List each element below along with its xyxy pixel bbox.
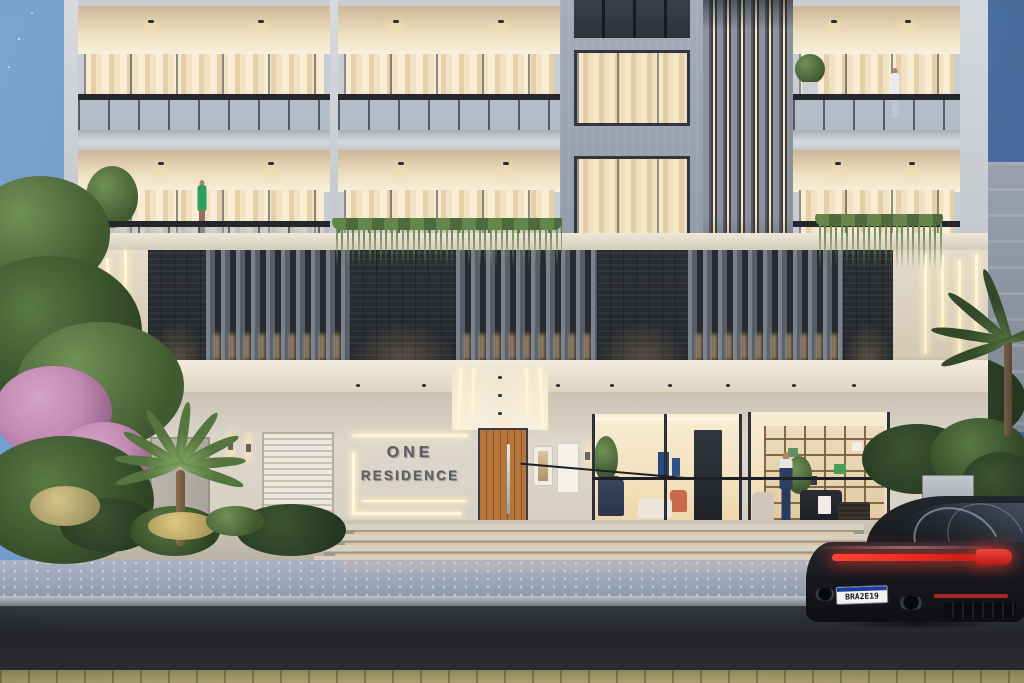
sign-led-line [362, 500, 466, 502]
wall-sconce [585, 452, 590, 460]
balcony-ceiling [793, 150, 960, 192]
floor-slab [338, 130, 560, 150]
person-body [780, 459, 793, 489]
rear-diffuser [944, 602, 1016, 618]
downlight [393, 20, 399, 23]
sports-car: BRA2E19 [806, 490, 1024, 635]
wall-sconce [246, 444, 251, 452]
door-handle [507, 444, 510, 514]
canopy-downlight [498, 376, 502, 379]
lobby-armchair [670, 490, 687, 512]
louver-column [703, 0, 793, 252]
downlight [498, 20, 504, 23]
downlight [268, 162, 274, 165]
lobby-artwork [672, 458, 680, 476]
louver-panel [206, 250, 350, 362]
star [8, 66, 10, 68]
railing-glass [338, 100, 560, 132]
balcony-bay-middle [338, 0, 560, 252]
hanging-planter-right [815, 214, 943, 270]
entry-handrail [592, 477, 890, 480]
balcony-plant [795, 54, 825, 84]
taillight-bar [832, 554, 980, 561]
dark-upper-window [574, 0, 690, 38]
sign-led-line [352, 512, 462, 515]
balcony-ceiling [338, 6, 560, 54]
downlight [158, 162, 164, 165]
hanging-planter-center [332, 218, 562, 268]
canopy-downlight [556, 384, 560, 387]
sign-led-line [352, 452, 355, 514]
canopy-downlight [498, 412, 502, 415]
taillight-cluster [976, 549, 1012, 565]
downlight [148, 20, 154, 23]
canopy-downlight [356, 384, 360, 387]
exhaust-tip [814, 588, 836, 601]
deck-highlight [814, 546, 1000, 549]
shelf-item [852, 442, 862, 451]
shelf-item [834, 464, 846, 474]
star [18, 38, 20, 40]
uplight-glow [688, 334, 843, 360]
floor-slab [78, 130, 330, 150]
person-dress [198, 185, 207, 211]
lit-window [574, 156, 690, 236]
sign-led-line [352, 434, 468, 437]
canopy-downlight [668, 384, 672, 387]
plate-number: BRA2E19 [837, 590, 887, 603]
balcony-ceiling [793, 6, 960, 54]
entrance-door [478, 428, 528, 528]
uplight-glow [206, 334, 350, 360]
canopy-downlight [726, 384, 730, 387]
architectural-render: ONE RESIDENCE [0, 0, 1024, 683]
canopy-downlight [422, 384, 426, 387]
far-curb-strip [0, 670, 1024, 683]
reflector-strip [934, 594, 1008, 598]
downlight [831, 20, 837, 23]
downlight [835, 162, 841, 165]
sign-line1: ONE [350, 444, 470, 462]
sign-line2: RESIDENCE [350, 468, 470, 483]
canopy-downlight [792, 384, 796, 387]
floor-slab [793, 130, 960, 150]
light-reflection [340, 562, 860, 575]
downlight [398, 162, 404, 165]
exhaust-tip [898, 596, 924, 610]
balcony-window [344, 54, 554, 96]
balcony-bay-left [78, 0, 330, 252]
facade-pier [960, 0, 988, 252]
canopy-downlight [852, 384, 856, 387]
canopy-downlight [610, 384, 614, 387]
canopy-downlight [498, 394, 502, 397]
downlight [905, 20, 911, 23]
building-sign: ONE RESIDENCE [350, 436, 472, 520]
balcony-ceiling [338, 150, 560, 192]
lobby-lounge-chair [598, 476, 624, 516]
led-strip [975, 254, 978, 342]
downlight [909, 162, 915, 165]
downlight [258, 20, 264, 23]
uplight-glow [456, 334, 597, 360]
balcony-ceiling [78, 6, 330, 54]
downlight [503, 162, 509, 165]
license-plate: BRA2E19 [836, 585, 889, 605]
railing-glass [78, 100, 330, 132]
lobby-ceiling-light [596, 418, 738, 420]
lit-window [574, 50, 690, 126]
star [31, 12, 33, 14]
facade-pier [330, 0, 338, 252]
balcony-window [84, 54, 324, 96]
stone-panel [597, 250, 688, 362]
railing-glass [793, 100, 960, 132]
